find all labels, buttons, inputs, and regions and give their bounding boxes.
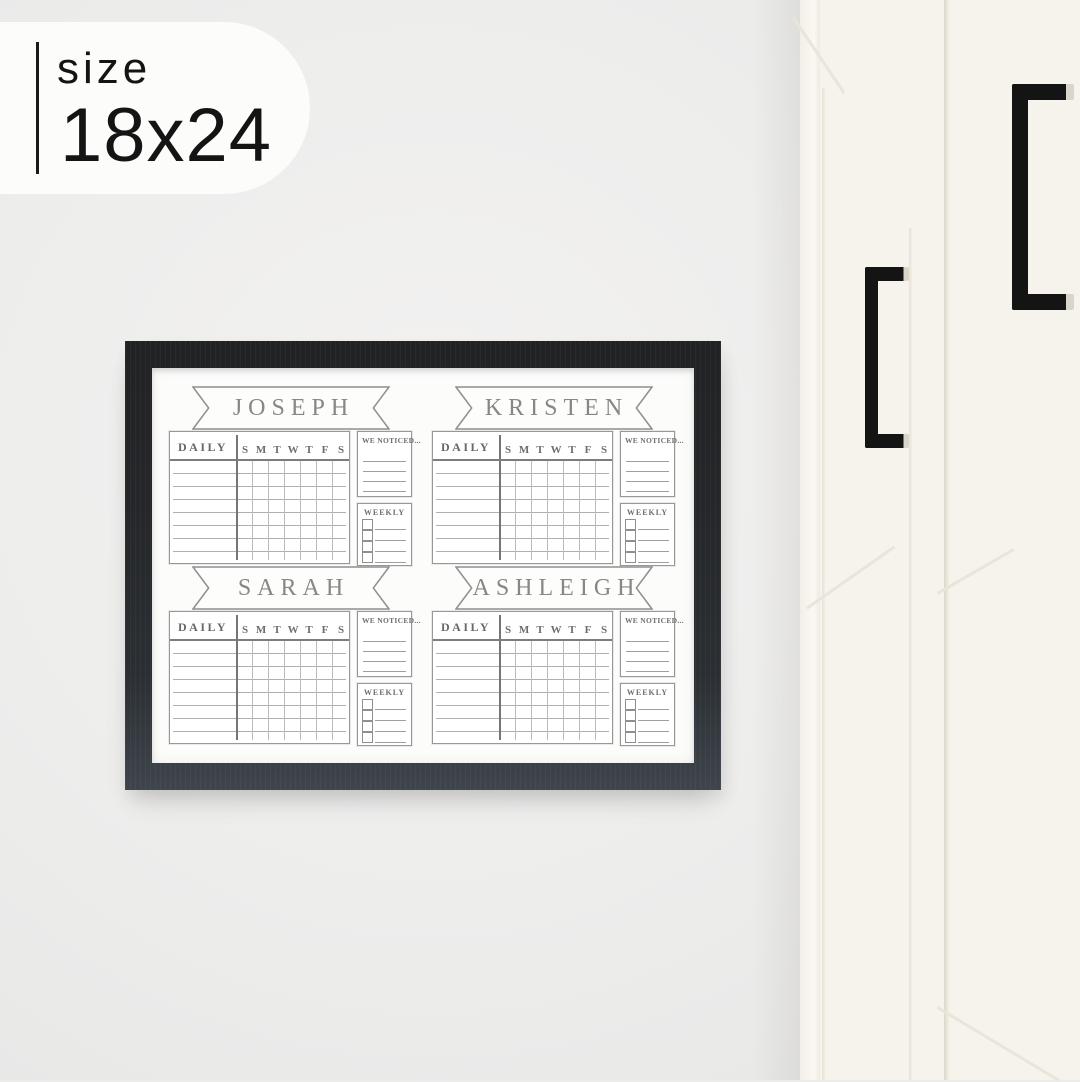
day-letter: M bbox=[253, 444, 269, 459]
day-columns bbox=[500, 639, 609, 740]
daily-chart: DAILY S M T W T F S bbox=[169, 611, 350, 744]
weekly-rows bbox=[621, 697, 674, 743]
day-letters: S M T W T F S bbox=[237, 432, 349, 459]
weekly-box: WEEKLY bbox=[357, 503, 412, 566]
weekly-rows bbox=[358, 697, 411, 743]
weekly-label: WEEKLY bbox=[621, 688, 674, 697]
weekly-box: WEEKLY bbox=[357, 683, 412, 746]
weekly-checkbox bbox=[625, 721, 636, 732]
whiteboard-chore-chart: JOSEPH DAILY S M T W T F bbox=[152, 368, 694, 763]
chore-chart-quadrant-sarah: SARAH DAILY S M T W T F bbox=[169, 566, 412, 747]
cabinet-panel-line bbox=[822, 88, 825, 1080]
day-letter: T bbox=[301, 624, 317, 639]
we-noticed-lines bbox=[626, 632, 669, 672]
day-letter: W bbox=[548, 624, 564, 639]
day-letter: T bbox=[269, 444, 285, 459]
weekly-checkbox bbox=[362, 552, 373, 563]
chore-chart-quadrant-ashleigh: ASHLEIGH DAILY S M T W T bbox=[432, 566, 675, 747]
we-noticed-label: WE NOTICED... bbox=[358, 432, 411, 445]
day-letters: S M T W T F S bbox=[237, 612, 349, 639]
weekly-rows bbox=[358, 517, 411, 563]
badge-dimensions: 18x24 bbox=[60, 92, 272, 179]
weekly-checkbox bbox=[625, 699, 636, 710]
we-noticed-label: WE NOTICED... bbox=[621, 612, 674, 625]
we-noticed-label: WE NOTICED... bbox=[358, 612, 411, 625]
we-noticed-lines bbox=[363, 632, 406, 672]
we-noticed-box: WE NOTICED... bbox=[357, 611, 412, 677]
day-letter: S bbox=[500, 444, 516, 459]
weekly-checkbox bbox=[625, 530, 636, 541]
weekly-checkbox bbox=[625, 519, 636, 530]
weekly-checkbox bbox=[362, 721, 373, 732]
day-letter: S bbox=[237, 444, 253, 459]
we-noticed-label: WE NOTICED... bbox=[621, 432, 674, 445]
day-letter: M bbox=[516, 444, 532, 459]
day-letter: M bbox=[253, 624, 269, 639]
day-letters: S M T W T F S bbox=[500, 432, 612, 459]
weekly-checkbox bbox=[362, 530, 373, 541]
day-letter: M bbox=[516, 624, 532, 639]
weekly-checkbox bbox=[362, 541, 373, 552]
weekly-box: WEEKLY bbox=[620, 503, 675, 566]
person-name: SARAH bbox=[192, 566, 390, 610]
chart-header: DAILY S M T W T F S bbox=[433, 612, 612, 641]
cabinet-diagonal-trim bbox=[936, 1006, 1059, 1082]
day-letter: S bbox=[596, 444, 612, 459]
day-columns bbox=[237, 639, 346, 740]
size-badge: size 18x24 bbox=[0, 22, 310, 194]
chore-chart-quadrant-kristen: KRISTEN DAILY S M T W T bbox=[432, 386, 675, 566]
weekly-checkbox bbox=[362, 699, 373, 710]
we-noticed-lines bbox=[626, 452, 669, 492]
weekly-checkbox bbox=[362, 732, 373, 743]
chart-header: DAILY S M T W T F S bbox=[433, 432, 612, 461]
daily-label: DAILY bbox=[178, 440, 228, 455]
day-letter: T bbox=[532, 624, 548, 639]
cabinet-handle bbox=[865, 267, 909, 448]
day-letter: T bbox=[269, 624, 285, 639]
badge-divider-bar bbox=[36, 42, 39, 174]
day-letter: F bbox=[580, 624, 596, 639]
day-letter: S bbox=[500, 624, 516, 639]
cabinet-side-panel bbox=[800, 0, 820, 1080]
we-noticed-box: WE NOTICED... bbox=[620, 611, 675, 677]
chart-header: DAILY S M T W T F S bbox=[170, 612, 349, 641]
weekly-box: WEEKLY bbox=[620, 683, 675, 746]
weekly-label: WEEKLY bbox=[358, 508, 411, 517]
person-name: KRISTEN bbox=[455, 386, 653, 430]
badge-size-label: size bbox=[57, 44, 151, 94]
we-noticed-box: WE NOTICED... bbox=[357, 431, 412, 497]
day-letter: T bbox=[301, 444, 317, 459]
name-banner: ASHLEIGH bbox=[455, 566, 653, 610]
we-noticed-box: WE NOTICED... bbox=[620, 431, 675, 497]
day-letter: W bbox=[548, 444, 564, 459]
daily-chart: DAILY S M T W T F S bbox=[169, 431, 350, 564]
weekly-checkbox bbox=[625, 710, 636, 721]
person-name: ASHLEIGH bbox=[455, 566, 653, 610]
day-letter: S bbox=[333, 624, 349, 639]
day-letter: W bbox=[285, 444, 301, 459]
wall-cabinet-shadow bbox=[752, 0, 800, 1080]
cabinet-panel-line bbox=[909, 228, 912, 1080]
black-picture-frame: JOSEPH DAILY S M T W T F bbox=[125, 341, 721, 790]
we-noticed-lines bbox=[363, 452, 406, 492]
day-columns bbox=[237, 459, 346, 560]
daily-chart: DAILY S M T W T F S bbox=[432, 431, 613, 564]
day-letter: T bbox=[564, 624, 580, 639]
day-letter: S bbox=[237, 624, 253, 639]
day-letter: T bbox=[532, 444, 548, 459]
day-letter: S bbox=[596, 624, 612, 639]
name-banner: KRISTEN bbox=[455, 386, 653, 430]
day-letter: W bbox=[285, 624, 301, 639]
weekly-checkbox bbox=[625, 732, 636, 743]
day-letter: F bbox=[317, 624, 333, 639]
weekly-rows bbox=[621, 517, 674, 563]
weekly-checkbox bbox=[625, 552, 636, 563]
day-letter: T bbox=[564, 444, 580, 459]
day-letter: F bbox=[580, 444, 596, 459]
day-letters: S M T W T F S bbox=[500, 612, 612, 639]
weekly-checkbox bbox=[362, 519, 373, 530]
daily-label: DAILY bbox=[441, 620, 491, 635]
daily-chart: DAILY S M T W T F S bbox=[432, 611, 613, 744]
day-columns bbox=[500, 459, 609, 560]
name-banner: JOSEPH bbox=[192, 386, 390, 430]
weekly-label: WEEKLY bbox=[621, 508, 674, 517]
daily-label: DAILY bbox=[178, 620, 228, 635]
chore-chart-quadrant-joseph: JOSEPH DAILY S M T W T F bbox=[169, 386, 412, 566]
cabinet-handle bbox=[1012, 84, 1074, 310]
weekly-label: WEEKLY bbox=[358, 688, 411, 697]
person-name: JOSEPH bbox=[192, 386, 390, 430]
day-letter: S bbox=[333, 444, 349, 459]
name-banner: SARAH bbox=[192, 566, 390, 610]
day-letter: F bbox=[317, 444, 333, 459]
chart-header: DAILY S M T W T F S bbox=[170, 432, 349, 461]
weekly-checkbox bbox=[625, 541, 636, 552]
daily-label: DAILY bbox=[441, 440, 491, 455]
cabinet-door-gap bbox=[944, 0, 949, 1080]
weekly-checkbox bbox=[362, 710, 373, 721]
